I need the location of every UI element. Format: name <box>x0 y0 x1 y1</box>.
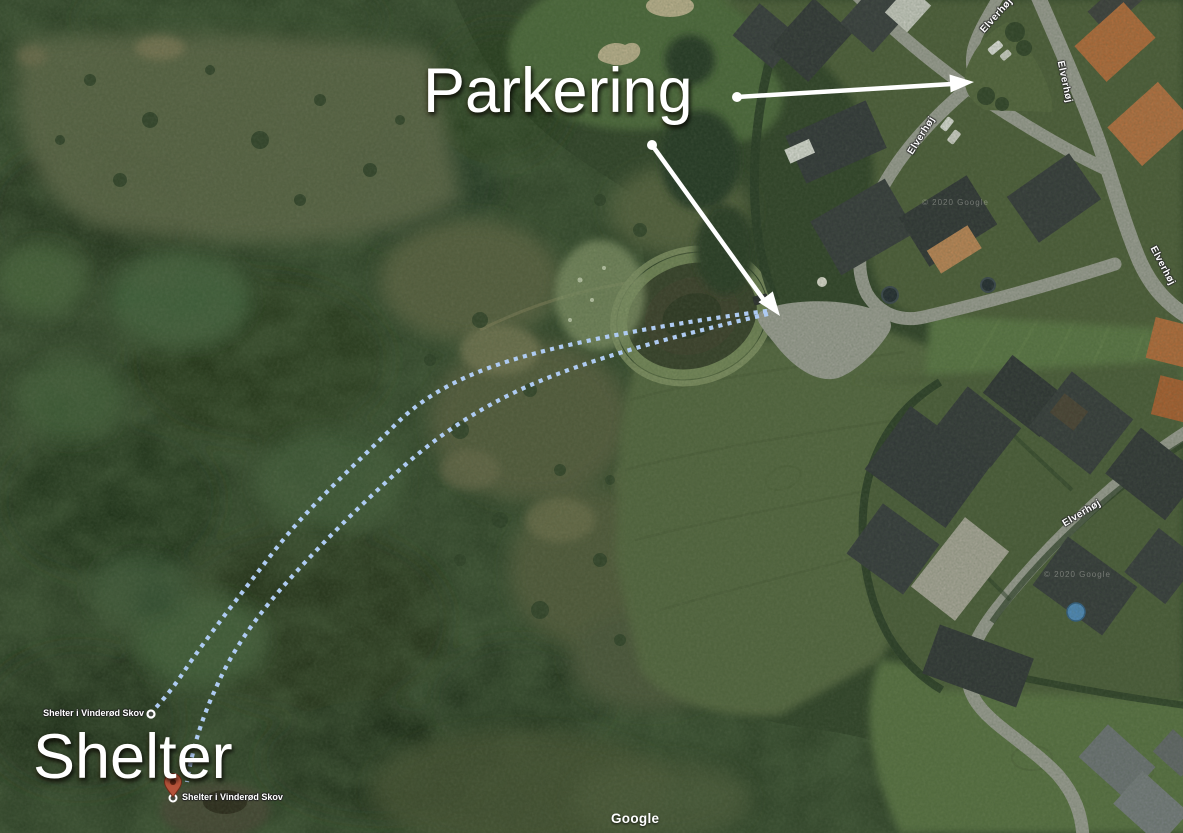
image-shimmer <box>0 0 1183 833</box>
map-screenshot: Parkering Shelter Shelter i Vinderød Sko… <box>0 0 1183 833</box>
satellite-map[interactable] <box>0 0 1183 833</box>
poi-dot-marker[interactable] <box>148 711 155 718</box>
